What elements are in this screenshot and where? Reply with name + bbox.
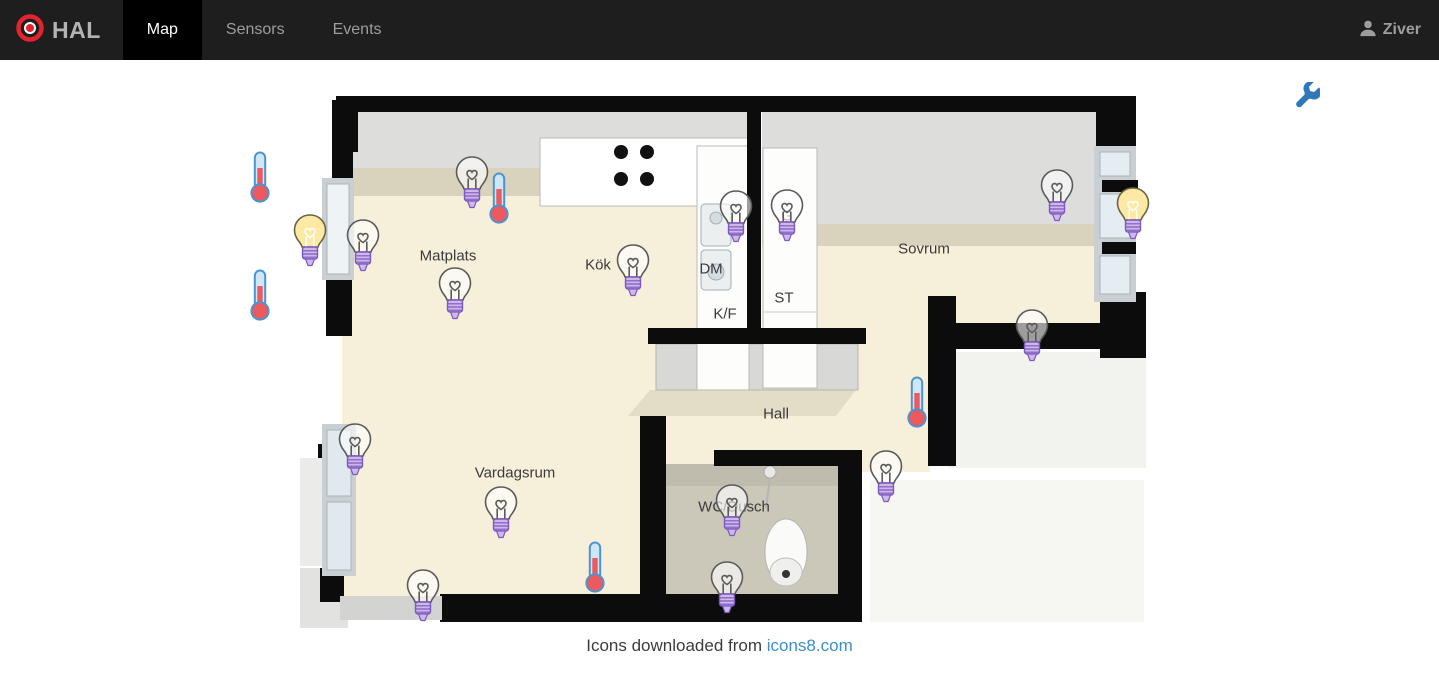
light-bulb-on-icon[interactable]	[1115, 186, 1151, 242]
light-bulb-off-icon[interactable]	[1014, 308, 1050, 364]
tab-sensors[interactable]: Sensors	[202, 0, 309, 60]
light-bulb-off-icon[interactable]	[437, 266, 473, 322]
light-bulb-off-icon[interactable]	[454, 155, 490, 211]
brand-title: HAL	[52, 17, 101, 44]
user-name: Ziver	[1383, 21, 1421, 39]
tab-events[interactable]: Events	[309, 0, 406, 60]
settings-wrench-button[interactable]	[1294, 82, 1320, 108]
user-menu[interactable]: Ziver	[1341, 0, 1439, 60]
top-navbar: HAL Map Sensors Events Ziver	[0, 0, 1439, 60]
thermometer-icon[interactable]	[905, 376, 929, 428]
thermometer-icon[interactable]	[487, 172, 511, 224]
light-bulb-off-icon[interactable]	[1039, 168, 1075, 224]
light-bulb-off-icon[interactable]	[769, 188, 805, 244]
nav-tabs: Map Sensors Events	[123, 0, 406, 60]
light-bulb-off-icon[interactable]	[405, 568, 441, 624]
light-bulb-off-icon[interactable]	[615, 243, 651, 299]
light-bulb-on-icon[interactable]	[292, 213, 328, 269]
light-bulb-off-icon[interactable]	[868, 449, 904, 505]
footer-text: Icons downloaded from	[586, 636, 767, 655]
hal-target-logo-icon	[16, 14, 44, 47]
light-bulb-off-icon[interactable]	[345, 218, 381, 274]
icons8-link[interactable]: icons8.com	[767, 636, 853, 655]
thermometer-icon[interactable]	[248, 151, 272, 203]
light-bulb-off-icon[interactable]	[718, 189, 754, 245]
thermometer-icon[interactable]	[583, 541, 607, 593]
tab-map[interactable]: Map	[123, 0, 202, 60]
footer: Icons downloaded from icons8.com	[0, 636, 1439, 656]
light-bulb-off-icon[interactable]	[714, 483, 750, 539]
brand[interactable]: HAL	[0, 0, 123, 60]
light-bulb-off-icon[interactable]	[337, 422, 373, 478]
thermometer-icon[interactable]	[248, 269, 272, 321]
user-icon	[1359, 19, 1377, 42]
device-layer	[0, 0, 1439, 675]
light-bulb-off-icon[interactable]	[483, 485, 519, 541]
light-bulb-off-icon[interactable]	[709, 560, 745, 616]
